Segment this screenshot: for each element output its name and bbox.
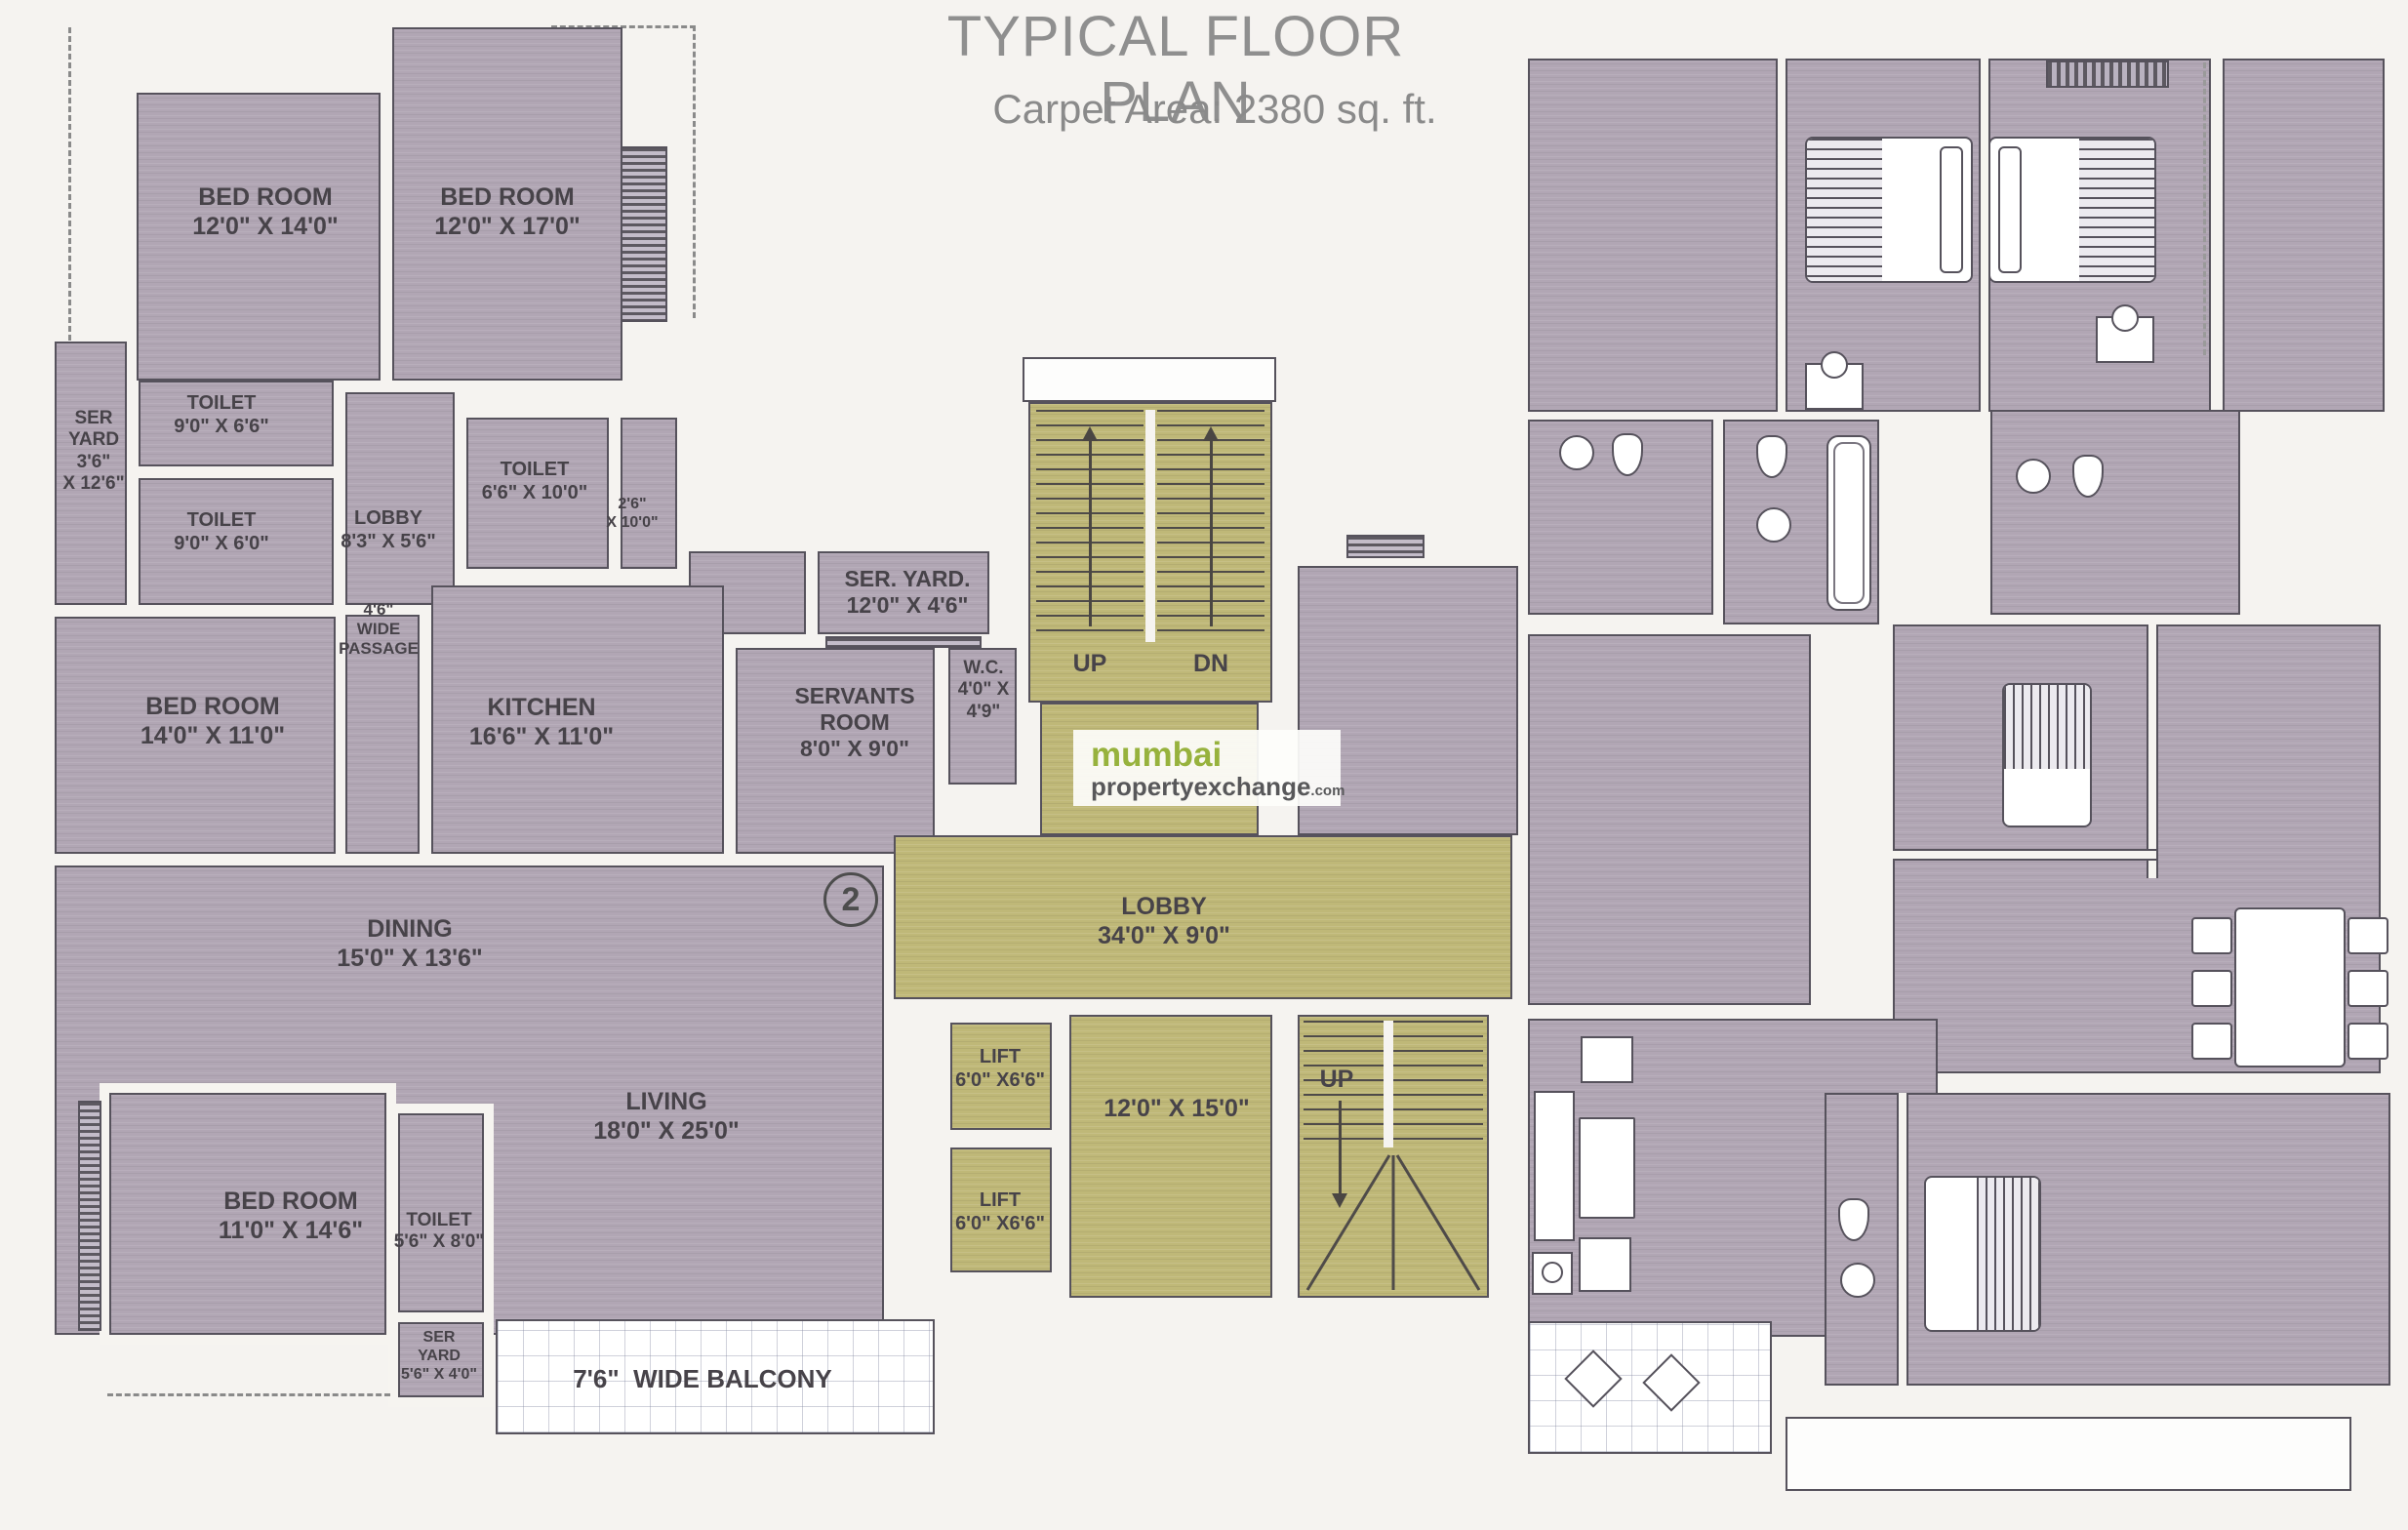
- window-hatch: [1346, 535, 1425, 558]
- nightstand-icon: [1805, 363, 1864, 410]
- logo-brand-top: mumbai: [1091, 738, 1344, 772]
- up-arrow-icon: [1089, 441, 1092, 626]
- window-hatch: [615, 146, 667, 322]
- servants-label: SERVANTSROOM8'0" X 9'0": [767, 683, 943, 762]
- bedroom-2-label: BED ROOM12'0" X 17'0": [410, 183, 605, 241]
- stair-diagonal-lines: [1304, 1151, 1483, 1294]
- dining-label: DINING15'0" X 13'6": [312, 915, 507, 973]
- room-right-bedroom-bottom: [1825, 1093, 2390, 1386]
- unit-marker-2: 2: [823, 872, 878, 927]
- lobby-small-label: LOBBY8'3" X 5'6": [320, 507, 457, 553]
- chair-icon: [2348, 917, 2388, 954]
- toilet-d-label: TOILET5'6" X 8'0": [381, 1210, 498, 1254]
- wall: [1893, 849, 2156, 861]
- room-stair-hall: [1069, 1015, 1272, 1298]
- bedroom-3-label: BED ROOM14'0" X 11'0": [105, 693, 320, 750]
- room-niche: [621, 418, 677, 569]
- stair-divider: [1145, 410, 1155, 642]
- terrace: [1786, 1417, 2351, 1491]
- bed-blanket: [1977, 1178, 2039, 1330]
- room-right-bath-3: [1990, 410, 2240, 615]
- window-hatch: [825, 636, 982, 648]
- wall: [2147, 624, 2158, 878]
- wall: [1897, 1093, 1908, 1386]
- balcony-dashed-line: [68, 27, 71, 393]
- bedroom-4-label: BED ROOM11'0" X 14'6": [183, 1188, 398, 1245]
- bed-icon: [1924, 1176, 2041, 1332]
- room-lobby-small: [345, 392, 455, 605]
- floor-plan: TYPICAL FLOOR PLAN Carpet Area: 2380 sq.…: [0, 0, 2408, 1530]
- chair-icon: [2191, 1023, 2232, 1060]
- bathtub-icon: [1826, 435, 1871, 611]
- ser-yard-bottom-label: SERYARD5'6" X 4'0": [390, 1329, 488, 1385]
- room-right-hall: [1528, 634, 1811, 1005]
- chair-icon: [2191, 917, 2232, 954]
- bed-icon: [2002, 683, 2092, 827]
- sink-icon: [1756, 507, 1791, 543]
- chair-icon: [2348, 1023, 2388, 1060]
- stair-dn-label: DN: [1182, 650, 1240, 679]
- stair-divider: [1384, 1021, 1393, 1147]
- balcony-dashed-line: [107, 1393, 390, 1396]
- wardrobe-hatch: [2046, 60, 2169, 88]
- bed-blanket: [2079, 139, 2154, 281]
- niche-label: 2'6"X 10'0": [593, 496, 671, 533]
- stair-up2-label: UP: [1307, 1066, 1366, 1095]
- lift-2-label: LIFT6'0" X6'6": [946, 1189, 1054, 1235]
- sink-icon: [2016, 459, 2051, 494]
- chair-icon: [2191, 970, 2232, 1007]
- toilet-b-label: TOILET9'0" X 6'0": [134, 509, 309, 555]
- armchair-icon: [1581, 1036, 1633, 1083]
- sink-icon: [1559, 435, 1594, 470]
- main-lobby-label: LOBBY34'0" X 9'0": [1066, 893, 1262, 950]
- bed-blanket: [1807, 139, 1882, 281]
- room-right-bedroom-tr: [2223, 59, 2385, 412]
- passage-label: 4'6"WIDEPASSAGE: [330, 600, 427, 659]
- ser-yard-left-label: SERYARD 3'6"X 12'6": [45, 408, 142, 496]
- kitchen-label: KITCHEN16'6" X 11'0": [444, 694, 639, 751]
- bed-pillow: [1998, 146, 2022, 273]
- page-subtitle: Carpet Area: 2380 sq. ft.: [942, 86, 1488, 133]
- bed-pillow: [1940, 146, 1963, 273]
- stair-up-label: UP: [1061, 650, 1119, 679]
- armchair-icon: [1579, 1237, 1631, 1292]
- living-label: LIVING18'0" X 25'0": [569, 1088, 764, 1146]
- brand-logo: mumbai propertyexchange.com: [1073, 730, 1341, 806]
- balcony-dashed-line: [2203, 62, 2206, 355]
- bedroom-1-label: BED ROOM12'0" X 14'0": [168, 183, 363, 241]
- ser-yard-top-label: SER. YARD.12'0" X 4'6": [810, 566, 1005, 619]
- dining-table-icon: [2234, 907, 2346, 1067]
- sink-icon: [1840, 1263, 1875, 1298]
- lift-1-label: LIFT6'0" X6'6": [946, 1046, 1054, 1092]
- bed-blanket: [2004, 685, 2090, 769]
- wc-label: W.C.4'0" X4'9": [943, 658, 1024, 723]
- stair-hall-label: 12'0" X 15'0": [1079, 1095, 1274, 1124]
- balcony-label: 7'6" WIDE BALCONY: [527, 1364, 878, 1394]
- up-arrow-icon: [1210, 441, 1213, 626]
- side-table-icon: [1532, 1252, 1573, 1295]
- chair-icon: [2348, 970, 2388, 1007]
- sofa-icon: [1534, 1091, 1575, 1241]
- toilet-a-label: TOILET9'0" X 6'6": [134, 392, 309, 438]
- window-hatch: [78, 1101, 101, 1331]
- nightstand-icon: [2096, 316, 2154, 363]
- bed-icon: [1988, 137, 2156, 283]
- bed-icon: [1805, 137, 1973, 283]
- logo-brand-bottom: propertyexchange.com: [1091, 774, 1344, 799]
- wall: [1776, 59, 1787, 412]
- coffee-table-icon: [1579, 1117, 1635, 1219]
- stair-landing: [1023, 357, 1276, 402]
